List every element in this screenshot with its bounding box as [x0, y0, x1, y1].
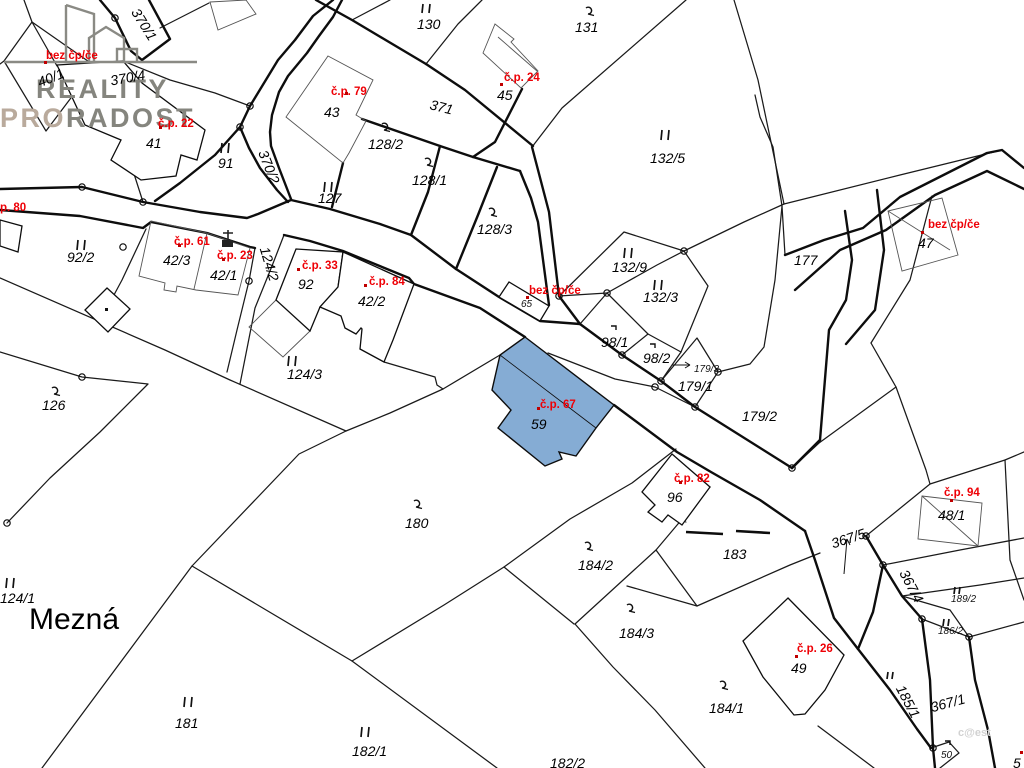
svg-text:186/2: 186/2 [938, 626, 963, 637]
svg-text:65: 65 [521, 299, 533, 310]
svg-text:132/3: 132/3 [643, 289, 678, 305]
svg-text:127: 127 [318, 190, 343, 206]
svg-text:č.p. 24: č.p. 24 [504, 72, 540, 84]
svg-text:č.p. 22: č.p. 22 [158, 118, 194, 130]
svg-text:48/1: 48/1 [938, 507, 965, 523]
svg-text:98/1: 98/1 [601, 334, 628, 350]
svg-text:č.p. 26: č.p. 26 [797, 643, 833, 655]
svg-text:5: 5 [1013, 755, 1021, 768]
svg-text:132/9: 132/9 [612, 259, 647, 275]
svg-text:bez čp/če: bez čp/če [46, 50, 98, 62]
svg-text:č.p. 33: č.p. 33 [302, 260, 338, 272]
svg-text:92/2: 92/2 [67, 249, 94, 265]
svg-text:182/1: 182/1 [352, 743, 387, 759]
svg-text:43: 43 [324, 104, 340, 120]
svg-text:179/3: 179/3 [694, 364, 719, 375]
svg-text:c@est: c@est [958, 727, 991, 739]
svg-text:182/2: 182/2 [550, 755, 585, 768]
svg-text:50: 50 [941, 750, 953, 761]
svg-text:49: 49 [791, 660, 807, 676]
svg-text:126: 126 [42, 397, 66, 413]
svg-text:92: 92 [298, 276, 314, 292]
svg-text:183: 183 [723, 546, 747, 562]
svg-text:p. 80: p. 80 [0, 202, 26, 214]
svg-text:41: 41 [146, 135, 162, 151]
svg-text:96: 96 [667, 489, 683, 505]
svg-text:124/3: 124/3 [287, 366, 322, 382]
svg-text:98/2: 98/2 [643, 350, 670, 366]
svg-text:č.p. 84: č.p. 84 [369, 276, 405, 288]
svg-text:bez čp/če: bez čp/če [928, 219, 980, 231]
svg-text:42/2: 42/2 [358, 293, 385, 309]
svg-text:184/1: 184/1 [709, 700, 744, 716]
svg-text:131: 131 [575, 19, 598, 35]
svg-text:181: 181 [175, 715, 198, 731]
svg-text:128/2: 128/2 [368, 136, 403, 152]
svg-text:č.p. 79: č.p. 79 [331, 86, 367, 98]
svg-text:45: 45 [497, 87, 513, 103]
svg-text:č.p. 67: č.p. 67 [540, 399, 576, 411]
svg-text:180: 180 [405, 515, 429, 531]
svg-text:bez čp/če: bez čp/če [529, 285, 581, 297]
svg-text:59: 59 [531, 416, 547, 432]
svg-text:Mezná: Mezná [29, 603, 119, 636]
svg-text:179/2: 179/2 [742, 408, 777, 424]
svg-text:124/1: 124/1 [0, 590, 35, 606]
svg-text:130: 130 [417, 16, 441, 32]
svg-text:189/2: 189/2 [951, 594, 976, 605]
svg-text:184/2: 184/2 [578, 557, 613, 573]
svg-text:179/1: 179/1 [678, 378, 713, 394]
svg-text:177: 177 [794, 252, 819, 268]
svg-text:47: 47 [918, 235, 935, 251]
svg-text:č.p. 94: č.p. 94 [944, 487, 980, 499]
svg-text:132/5: 132/5 [650, 150, 685, 166]
svg-text:128/1: 128/1 [412, 172, 447, 188]
svg-text:91: 91 [218, 155, 234, 171]
svg-text:184/3: 184/3 [619, 625, 654, 641]
svg-text:128/3: 128/3 [477, 221, 512, 237]
svg-text:42/3: 42/3 [163, 252, 190, 268]
svg-text:42/1: 42/1 [210, 267, 237, 283]
